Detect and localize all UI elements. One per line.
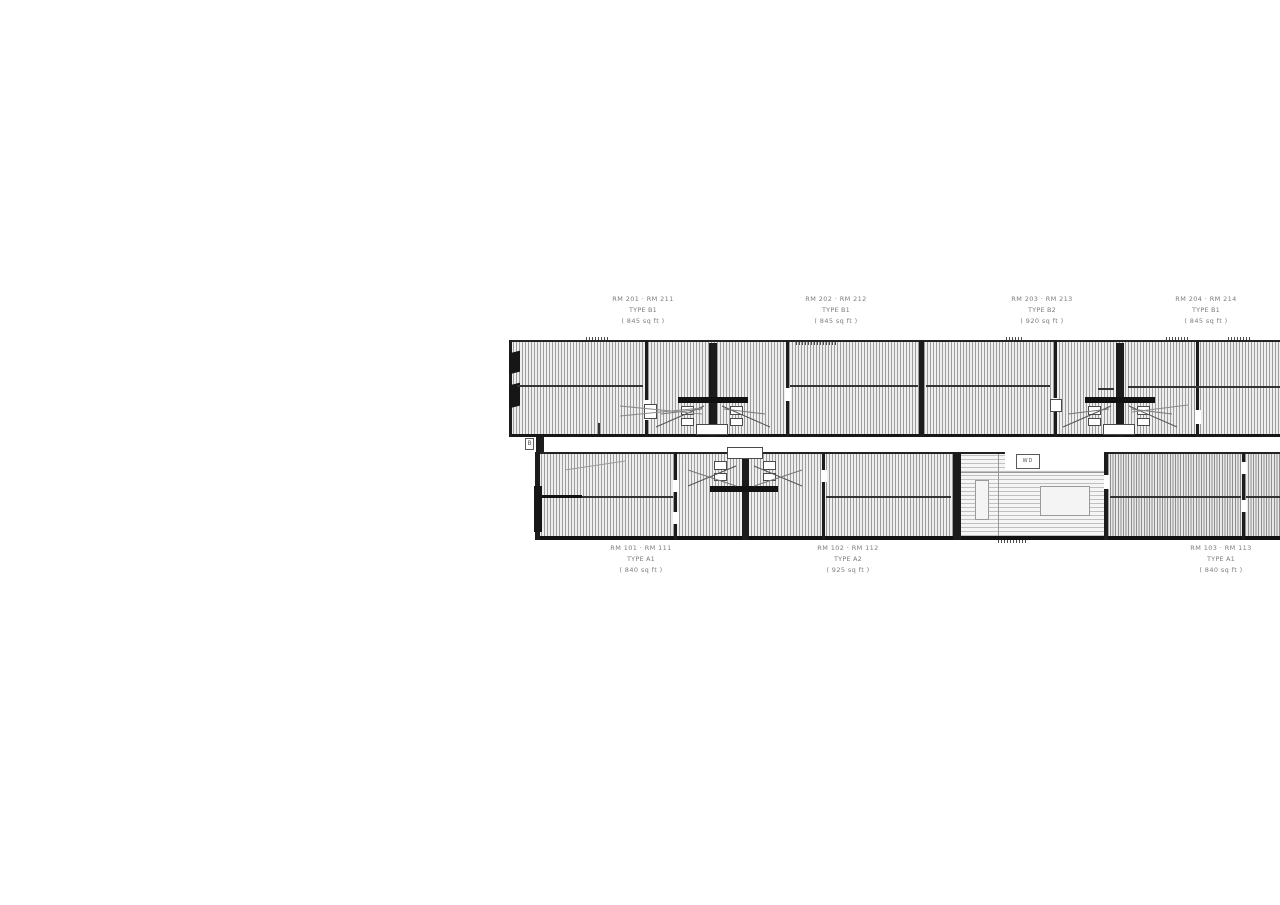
- equipment-box: WD: [1016, 454, 1040, 469]
- unit-label-line3: ( 925 sq ft ): [817, 565, 878, 576]
- unit-divider-wall: [645, 340, 648, 437]
- unit-label-line2: TYPE B1: [1175, 305, 1236, 316]
- unit-label: RM 203 · RM 213 TYPE B2 ( 920 sq ft ): [1011, 294, 1072, 327]
- bath-fixture: [1137, 406, 1150, 415]
- door-opening: [785, 388, 791, 401]
- threshold-tick: [598, 423, 600, 434]
- unit-divider-wall: [919, 340, 924, 437]
- unit-divider-wall: [1054, 340, 1057, 437]
- window-sill-ticks: [796, 342, 836, 345]
- unit-label: RM 204 · RM 214 TYPE B1 ( 845 sq ft ): [1175, 294, 1236, 327]
- plumbing-chase-wall: [1116, 343, 1124, 437]
- partition-wall: [1098, 388, 1114, 390]
- unit-label-line2: TYPE A1: [610, 554, 671, 565]
- unit-label-line3: ( 845 sq ft ): [1175, 316, 1236, 327]
- common-room-partition: [961, 472, 1104, 473]
- unit-divider-wall: [674, 452, 677, 540]
- unit-label-line2: TYPE A2: [817, 554, 878, 565]
- unit-label-line1: RM 203 · RM 213: [1011, 294, 1072, 305]
- door-opening: [1241, 500, 1247, 512]
- unit-label-line3: ( 845 sq ft ): [612, 316, 673, 327]
- unit-label-line2: TYPE B1: [612, 305, 673, 316]
- unit-label-line2: TYPE A1: [1190, 554, 1251, 565]
- bathtub: [727, 447, 763, 459]
- dimension-ticks: [998, 540, 1028, 543]
- bath-fixture: [730, 406, 743, 415]
- bath-fixture: [1088, 418, 1101, 426]
- unit-label-line1: RM 204 · RM 214: [1175, 294, 1236, 305]
- unit-label-line1: RM 202 · RM 212: [805, 294, 866, 305]
- bottom-band-dark-section: [1110, 454, 1280, 536]
- door-opening: [821, 470, 827, 482]
- door-opening: [673, 512, 679, 524]
- unit-divider-wall: [822, 452, 825, 540]
- partition-wall: [790, 385, 918, 387]
- floorplan-canvas: B WD: [0, 0, 1280, 905]
- cabinet-fixture: [1040, 486, 1090, 516]
- casework-bar: [710, 486, 778, 492]
- unit-label-line2: TYPE B1: [805, 305, 866, 316]
- unit-label-line3: ( 840 sq ft ): [1190, 565, 1251, 576]
- unit-label: RM 102 · RM 112 TYPE A2 ( 925 sq ft ): [817, 543, 878, 576]
- unit-divider-wall: [1104, 452, 1108, 540]
- door-frame-box: [1050, 399, 1062, 412]
- bath-fixture: [763, 461, 776, 470]
- partition-wall: [1246, 496, 1280, 498]
- door-frame-box: [644, 404, 657, 419]
- door-opening: [1241, 462, 1247, 474]
- partition-wall: [826, 496, 951, 498]
- unit-label-line3: ( 840 sq ft ): [610, 565, 671, 576]
- unit-label-line1: RM 101 · RM 111: [610, 543, 671, 554]
- corridor-stub-wall: [536, 437, 544, 452]
- bath-fixture: [730, 418, 743, 426]
- unit-label: RM 103 · RM 113 TYPE A1 ( 840 sq ft ): [1190, 543, 1251, 576]
- window-sill-ticks: [1166, 337, 1188, 340]
- door-opening: [673, 480, 679, 492]
- bath-fixture: [1088, 406, 1101, 415]
- bath-fixture: [1137, 418, 1150, 426]
- unit-label: RM 202 · RM 212 TYPE B1 ( 845 sq ft ): [805, 294, 866, 327]
- window-sill-ticks: [1228, 337, 1250, 340]
- unit-label-line1: RM 103 · RM 113: [1190, 543, 1251, 554]
- partition-wall: [517, 385, 643, 387]
- bath-fixture: [714, 473, 727, 481]
- door-opening: [1195, 410, 1201, 424]
- common-room-partition: [998, 454, 999, 536]
- unit-label-line1: RM 201 · RM 211: [612, 294, 673, 305]
- unit-label: RM 101 · RM 111 TYPE A1 ( 840 sq ft ): [610, 543, 671, 576]
- partition-wall: [1128, 386, 1280, 388]
- bathtub: [1103, 424, 1135, 435]
- top-band: [510, 340, 1280, 437]
- corridor-mark: B: [525, 438, 534, 450]
- unit-label-line2: TYPE B2: [1011, 305, 1072, 316]
- unit-label: RM 201 · RM 211 TYPE B1 ( 845 sq ft ): [612, 294, 673, 327]
- unit-label-line1: RM 102 · RM 112: [817, 543, 878, 554]
- bath-fixture: [763, 473, 776, 481]
- partition-wall: [1110, 496, 1241, 498]
- core-wall: [953, 452, 961, 540]
- window-sill-ticks: [586, 337, 610, 340]
- equipment-box-label: WD: [1023, 458, 1034, 464]
- unit-label-line3: ( 920 sq ft ): [1011, 316, 1072, 327]
- unit-label-line3: ( 845 sq ft ): [805, 316, 866, 327]
- plumbing-chase-wall: [742, 452, 749, 540]
- window-sill-ticks: [1006, 337, 1024, 340]
- casework-bar: [678, 397, 748, 403]
- partition-wall-dark-segment: [542, 495, 582, 498]
- bath-fixture: [681, 406, 694, 415]
- partition-wall: [926, 385, 1050, 387]
- corridor-mark-label: B: [527, 440, 531, 447]
- bathtub: [696, 424, 728, 435]
- plumbing-chase-wall: [709, 343, 717, 437]
- bath-fixture: [681, 418, 694, 426]
- bath-fixture: [714, 461, 727, 470]
- casework-bar: [1085, 397, 1155, 403]
- cabinet-fixture: [975, 480, 989, 520]
- shear-wall-blob: [534, 486, 542, 532]
- shear-wall-blob: [509, 351, 520, 375]
